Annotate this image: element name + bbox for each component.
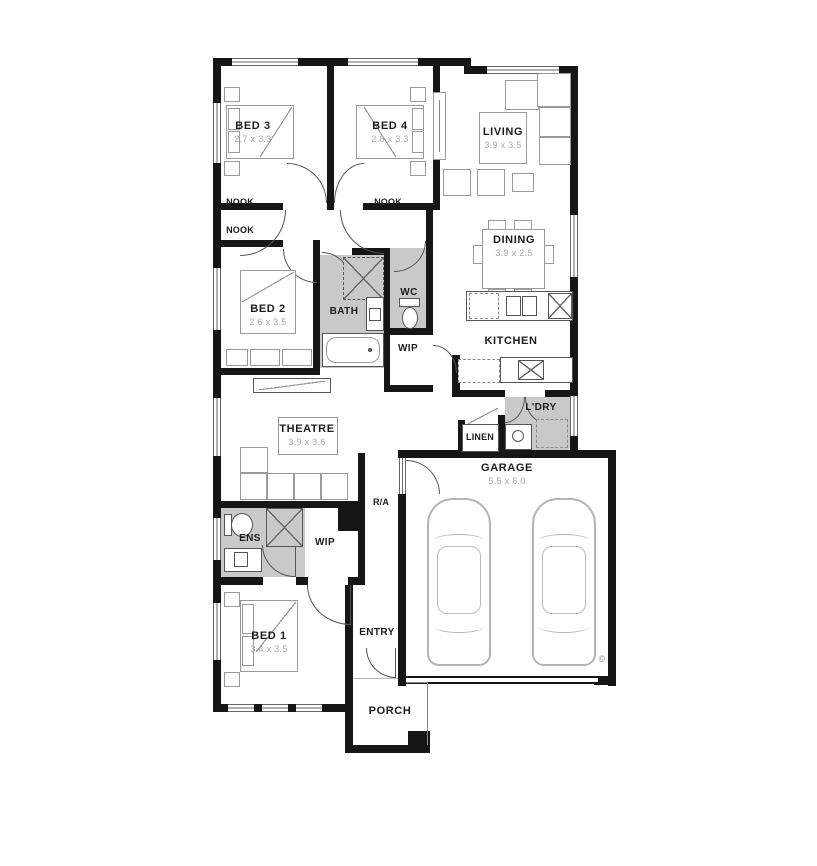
porch-edge — [406, 682, 428, 683]
cooktop — [518, 360, 544, 380]
door-arc — [340, 210, 384, 254]
room-label-linen: LINEN — [466, 432, 494, 442]
wall — [213, 577, 263, 585]
window — [296, 704, 322, 712]
room-dims: 2.6 x 3.5 — [249, 317, 286, 327]
bench-marking — [548, 293, 572, 319]
car-roof — [437, 546, 481, 614]
nook-label: NOOK — [226, 225, 254, 235]
tap — [368, 348, 372, 352]
car-roof — [542, 546, 586, 614]
fridge-space — [458, 359, 500, 383]
wall — [345, 745, 415, 753]
window — [570, 396, 578, 436]
room-label-entry: ENTRY — [359, 627, 395, 639]
window — [213, 603, 221, 660]
nook-label: NOOK — [374, 197, 402, 207]
sofa-cell — [294, 473, 321, 500]
room-label-bed4: BED 4 2.8 x 3.3 — [371, 120, 408, 144]
bedside-table — [410, 161, 426, 176]
dining-chair — [473, 245, 483, 264]
room-name: BED 4 — [371, 120, 408, 133]
return-air-duct — [338, 501, 365, 531]
return-air-label: R/A — [373, 497, 389, 507]
room-dims: 2.7 x 3.3 — [234, 134, 271, 144]
bedside-table — [410, 87, 426, 102]
room-label-wc: WC — [400, 287, 417, 299]
sofa-cell — [240, 447, 268, 473]
sofa-cell — [539, 137, 571, 165]
door-arc — [406, 460, 440, 494]
room-name: LIVING — [483, 126, 523, 139]
room-label-kitchen: KITCHEN — [484, 335, 537, 348]
room-dims: 3.9 x 3.5 — [483, 140, 523, 150]
kitchen-sink — [522, 296, 537, 316]
shower — [266, 508, 303, 547]
copyright-mark: © — [599, 654, 606, 664]
kitchen-sink — [506, 296, 521, 316]
wall — [327, 58, 334, 210]
washer-space — [536, 419, 568, 448]
room-label-wip-robe: WIP — [315, 537, 335, 549]
trough-basin — [512, 430, 524, 442]
window — [262, 704, 288, 712]
room-label-bed2: BED 2 2.6 x 3.5 — [249, 303, 286, 327]
room-dims: 3.9 x 3.6 — [279, 437, 334, 447]
room-label-dining: DINING 3.9 x 2.5 — [493, 234, 535, 258]
room-dims: 3.9 x 2.5 — [493, 248, 535, 258]
room-name: GARAGE — [481, 462, 533, 475]
tv-cabinet-line — [258, 381, 326, 390]
basin — [369, 308, 381, 321]
door-arc — [334, 163, 364, 203]
room-dims: 5.5 x 6.0 — [481, 476, 533, 486]
wall — [398, 450, 616, 458]
wall — [296, 577, 308, 585]
sofa-cell — [267, 473, 294, 500]
side-table — [512, 173, 534, 192]
room-name: BED 1 — [250, 630, 287, 643]
sofa-cell — [321, 473, 348, 500]
basin — [234, 552, 248, 567]
door-arc — [433, 345, 457, 373]
room-label-ens: ENS — [239, 533, 261, 545]
bench-overhang — [469, 293, 499, 319]
bedside-table — [224, 672, 240, 687]
wall — [426, 248, 433, 335]
bedside-table — [224, 87, 240, 102]
door-leaf — [295, 545, 296, 577]
floor-plan: BED 3 2.7 x 3.3 BED 4 2.8 x 3.3 LIVING 3… — [0, 0, 817, 866]
bed-fold-line — [242, 272, 294, 302]
bedside-table — [224, 592, 240, 607]
door-arc — [307, 585, 351, 625]
room-label-bed3: BED 3 2.7 x 3.3 — [234, 120, 271, 144]
wall — [358, 453, 365, 503]
car-rear-window — [539, 620, 589, 633]
tv-line — [439, 100, 440, 152]
car-windshield — [434, 534, 484, 547]
armchair — [443, 169, 471, 196]
wall — [608, 458, 616, 686]
bedside-table — [224, 161, 240, 176]
window — [348, 58, 418, 66]
room-name: DINING — [493, 234, 535, 247]
garage-door-frame — [399, 458, 406, 494]
car-windshield — [539, 534, 589, 547]
toilet-bowl — [402, 307, 418, 329]
window — [213, 518, 221, 560]
room-label-bed1: BED 1 3.4 x 3.5 — [250, 630, 287, 654]
wall — [390, 385, 433, 392]
wall — [398, 494, 406, 686]
armchair — [477, 169, 505, 196]
sofa-cell — [505, 80, 539, 110]
wall — [426, 210, 433, 248]
window — [570, 215, 578, 277]
door-arc — [287, 163, 327, 203]
room-label-garage: GARAGE 5.5 x 6.0 — [481, 462, 533, 486]
window — [232, 58, 298, 66]
room-dims: 3.4 x 3.5 — [250, 644, 287, 654]
wall — [213, 368, 320, 375]
wall — [384, 248, 390, 392]
wall — [345, 680, 353, 753]
bed-head — [250, 349, 280, 366]
door-leaf — [350, 585, 351, 625]
toilet-cistern — [399, 298, 420, 307]
dining-chair — [544, 245, 554, 264]
room-label-laundry: L'DRY — [525, 402, 556, 414]
room-name: BED 2 — [249, 303, 286, 316]
room-label-wip-pantry: WIP — [398, 343, 418, 355]
garage-door — [406, 676, 598, 684]
sofa-cell — [539, 107, 571, 137]
door-arc — [366, 648, 396, 678]
wall — [498, 415, 505, 450]
window — [213, 268, 221, 330]
window — [213, 398, 221, 456]
window — [228, 704, 254, 712]
room-label-bath: BATH — [330, 306, 359, 318]
dining-chair — [514, 220, 532, 230]
door-leaf — [395, 648, 396, 678]
bed-head — [282, 349, 312, 366]
wall — [390, 328, 433, 335]
shower — [343, 257, 384, 300]
room-name: BED 3 — [234, 120, 271, 133]
wall — [452, 390, 505, 397]
room-name: THEATRE — [279, 423, 334, 436]
room-label-living: LIVING 3.9 x 3.5 — [483, 126, 523, 150]
window — [213, 103, 221, 163]
entry-threshold — [353, 678, 398, 679]
sofa-cell — [240, 473, 267, 500]
wall — [348, 577, 365, 585]
dining-chair — [488, 220, 506, 230]
sofa-cell — [537, 73, 571, 107]
nook-label: NOOK — [226, 197, 254, 207]
car-rear-window — [434, 620, 484, 633]
porch-edge — [427, 682, 428, 745]
bed-head — [226, 349, 248, 366]
pillow — [412, 131, 424, 153]
room-dims: 2.8 x 3.3 — [371, 134, 408, 144]
pillow — [412, 108, 424, 130]
room-label-porch: PORCH — [369, 705, 412, 718]
room-label-theatre: THEATRE 3.9 x 3.6 — [279, 423, 334, 447]
